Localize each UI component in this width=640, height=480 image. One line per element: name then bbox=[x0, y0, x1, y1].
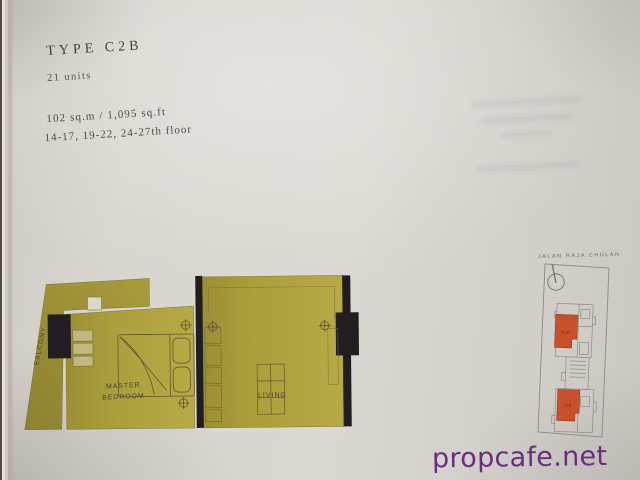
page-edge bbox=[0, 0, 14, 480]
key-plan: JALAN RAJA CHULAN C2B C2B bbox=[528, 246, 636, 446]
north-arrow-icon bbox=[548, 265, 564, 291]
unit-label: C2B bbox=[563, 403, 571, 407]
watermark: propcafe.net bbox=[432, 443, 636, 473]
wardrobe-icon bbox=[73, 330, 93, 366]
balcony-door-icon bbox=[87, 297, 101, 310]
wall-column bbox=[48, 314, 71, 358]
wall-column bbox=[336, 312, 359, 355]
floor-plan: BALCONY MASTER BEDROOM LIVING bbox=[17, 270, 367, 434]
unit-count: 21 units bbox=[47, 58, 308, 84]
living-label: LIVING bbox=[258, 392, 287, 399]
room-living bbox=[202, 275, 344, 427]
unit-label: C2B bbox=[562, 331, 570, 335]
page-show-through bbox=[464, 95, 598, 174]
street-label: JALAN RAJA CHULAN bbox=[538, 252, 621, 260]
title-block: TYPE C2B 21 units 102 sq.m / 1,095 sq.ft… bbox=[46, 29, 311, 144]
